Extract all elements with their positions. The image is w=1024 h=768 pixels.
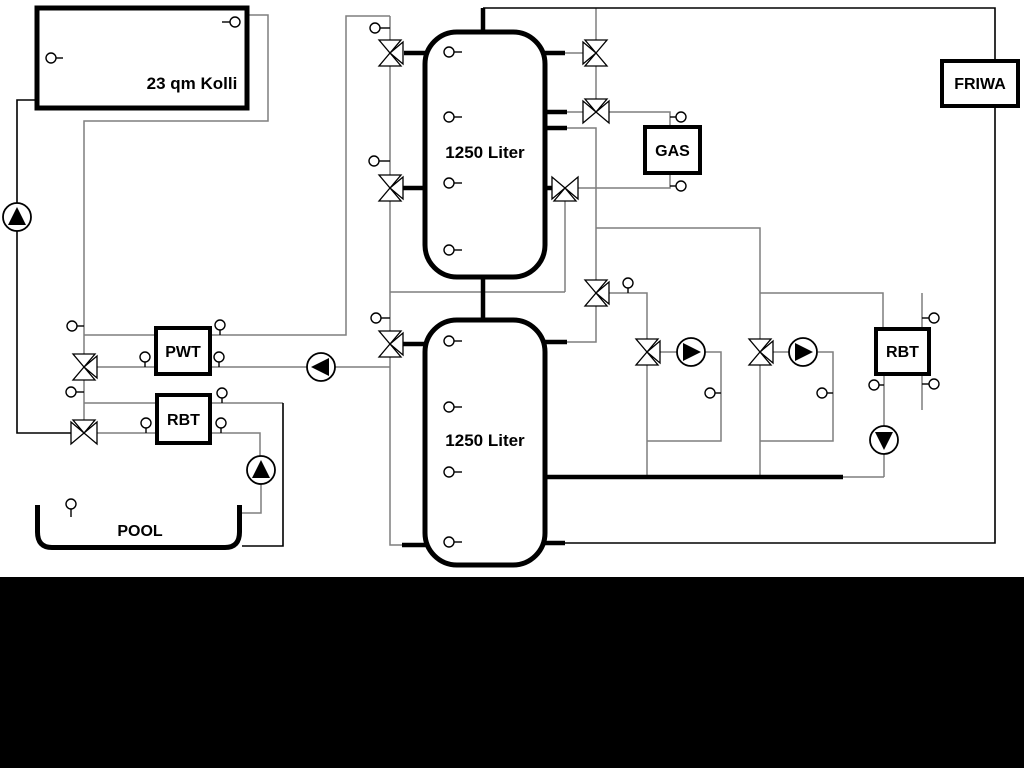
pipe-pool-pump-return xyxy=(242,484,261,513)
rbt-right-label: RBT xyxy=(886,344,919,361)
pipe-tank-left-riser xyxy=(390,16,403,545)
sensor-rbt-left-right1-icon xyxy=(217,388,227,403)
sensor-rbt-right-bottom-icon xyxy=(922,379,939,389)
sensor-riser-low-icon xyxy=(371,313,390,323)
valve-mixer-groupA-icon xyxy=(636,339,660,365)
sensor-heating-supply-icon xyxy=(623,278,633,293)
pipe-gas-supply xyxy=(609,112,670,127)
pump-pool-icon xyxy=(247,456,275,484)
valve-tank1-left-top-icon xyxy=(379,40,403,66)
sensor-pwt-out-right-icon xyxy=(214,352,224,367)
hydraulic-schematic: 23 qm Kolli 1250 Liter 1250 Liter PWT RB… xyxy=(0,0,1024,768)
sensor-pwt-in-left-icon xyxy=(67,321,84,331)
sensor-rbt-left-right2-icon xyxy=(216,418,226,433)
sensor-rbt-right-left-icon xyxy=(869,380,884,390)
pwt-label: PWT xyxy=(165,344,201,361)
pump-rbt-right-icon xyxy=(870,426,898,454)
valve-pool-circuit-icon xyxy=(71,420,97,444)
valve-gas-return-icon xyxy=(552,177,578,201)
pipe-collector-supply xyxy=(17,100,71,433)
solar-collector-box xyxy=(37,8,247,108)
sensor-gas-return-icon xyxy=(670,181,686,191)
friwa-label: FRIWA xyxy=(954,76,1006,93)
pump-solar-icon xyxy=(3,203,31,231)
footer-black-bar xyxy=(0,577,1024,768)
sensor-groupB-icon xyxy=(817,388,833,398)
pipe-rbt-right-supply xyxy=(760,293,883,329)
sensor-pwt-out-left-icon xyxy=(140,352,150,367)
sensor-rbt-left-in-icon xyxy=(66,387,84,397)
pool-label: POOL xyxy=(117,523,163,540)
collector-label: 23 qm Kolli xyxy=(147,74,238,93)
sensor-pool-icon xyxy=(66,499,76,517)
pipe-tank1-right-port3 xyxy=(567,128,596,280)
sensor-rbt-left-out-icon xyxy=(141,418,151,433)
sensor-riser-mid-icon xyxy=(369,156,390,166)
pipe-gas-return xyxy=(578,173,670,188)
tank-top-label: 1250 Liter xyxy=(445,143,525,162)
sensor-groupA-icon xyxy=(705,388,721,398)
valve-gas-supply-icon xyxy=(583,99,609,123)
rbt-left-label: RBT xyxy=(167,412,200,429)
pipe-groupA-riser xyxy=(609,293,647,477)
sensor-riser-top-icon xyxy=(370,23,390,33)
sensor-pwt-in-right-icon xyxy=(215,320,225,335)
valve-tank1-right-top-icon xyxy=(583,40,607,66)
pipe-rbt-left-out-bottom xyxy=(210,433,260,456)
valve-tank1-left-bottom-icon xyxy=(379,175,403,201)
pump-pwt-icon xyxy=(307,353,335,381)
valve-heating-supply-icon xyxy=(585,280,609,306)
tank-bottom-label: 1250 Liter xyxy=(445,431,525,450)
valve-pwt-supply-icon xyxy=(73,354,97,380)
valve-mixer-groupB-icon xyxy=(749,339,773,365)
sensor-gas-supply-icon xyxy=(670,112,686,122)
pump-groupB-icon xyxy=(789,338,817,366)
sensor-rbt-right-top-icon xyxy=(922,313,939,323)
gas-label: GAS xyxy=(655,143,690,160)
pipe-valve9-to-tank2 xyxy=(567,306,596,342)
pump-groupA-icon xyxy=(677,338,705,366)
pipe-friwa-loop xyxy=(483,8,995,543)
valve-tank2-left-icon xyxy=(379,331,403,357)
